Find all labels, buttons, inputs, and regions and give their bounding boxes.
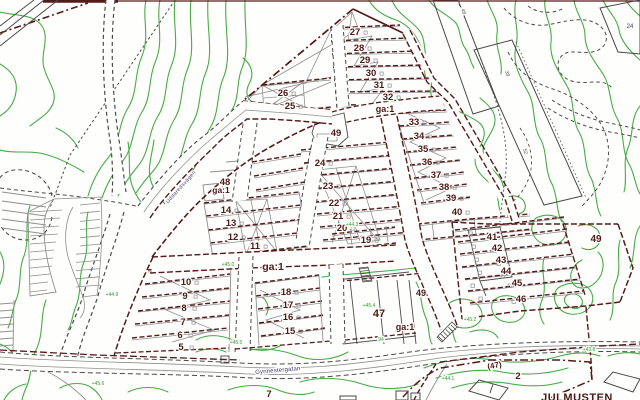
svg-text:24: 24 [315, 158, 326, 169]
svg-text:45: 45 [512, 278, 523, 289]
svg-text:5: 5 [178, 342, 184, 353]
svg-text:30: 30 [366, 68, 377, 79]
svg-text:42: 42 [492, 243, 503, 254]
svg-text:29: 29 [360, 55, 371, 66]
svg-text:44: 44 [501, 266, 512, 277]
svg-text:+45.5: +45.5 [230, 340, 243, 346]
svg-text:36: 36 [422, 157, 433, 168]
svg-text:6: 6 [177, 330, 182, 341]
svg-text:10: 10 [181, 277, 192, 288]
svg-text:7: 7 [180, 317, 185, 328]
svg-text:39: 39 [446, 193, 457, 204]
svg-text:7: 7 [266, 389, 271, 400]
svg-text:+45.0: +45.0 [222, 262, 235, 268]
svg-text:33: 33 [409, 117, 420, 128]
svg-text:49: 49 [331, 128, 342, 139]
svg-text:+45.6: +45.6 [92, 381, 105, 387]
svg-text:8: 8 [181, 303, 186, 314]
svg-text:23: 23 [323, 181, 334, 192]
svg-text:35: 35 [418, 144, 429, 155]
svg-text:ga:1: ga:1 [262, 261, 284, 273]
svg-text:16: 16 [283, 312, 294, 323]
svg-text:47: 47 [373, 308, 385, 320]
svg-text:40: 40 [452, 207, 463, 218]
svg-text:19: 19 [361, 235, 372, 246]
svg-text:+44.9: +44.9 [106, 292, 119, 298]
svg-text:11: 11 [250, 241, 261, 252]
svg-text:22: 22 [329, 198, 340, 209]
svg-text:9: 9 [182, 291, 187, 302]
svg-text:+45.4: +45.4 [363, 303, 376, 309]
svg-text:12: 12 [228, 232, 239, 243]
svg-text:94: 94 [378, 337, 384, 343]
svg-text:+44.3: +44.3 [346, 222, 359, 228]
svg-text:18: 18 [281, 287, 292, 298]
svg-text:32: 32 [383, 92, 394, 103]
svg-text:+44.1: +44.1 [442, 376, 455, 382]
svg-text:49: 49 [590, 234, 602, 245]
svg-text:27: 27 [350, 27, 361, 38]
svg-text:37: 37 [431, 170, 442, 181]
svg-text:2: 2 [515, 371, 520, 382]
svg-text:+45.2: +45.2 [464, 317, 477, 323]
svg-text:31: 31 [374, 80, 385, 91]
svg-text:JULMUSTEN: JULMUSTEN [541, 392, 613, 400]
svg-text:34: 34 [414, 131, 425, 142]
svg-text:ga:1: ga:1 [212, 185, 230, 195]
svg-text:21: 21 [333, 211, 344, 222]
svg-text:ga:1: ga:1 [396, 322, 415, 332]
svg-text:26: 26 [278, 88, 289, 99]
svg-text:46: 46 [516, 294, 527, 305]
svg-text:25: 25 [285, 101, 296, 112]
svg-text:24: 24 [627, 24, 634, 30]
svg-text:15: 15 [285, 326, 296, 337]
svg-text:14: 14 [221, 205, 232, 216]
svg-text:ga:1: ga:1 [376, 104, 395, 114]
svg-text:41: 41 [487, 232, 498, 243]
svg-text:+43.8: +43.8 [583, 347, 596, 353]
svg-text:13: 13 [226, 218, 237, 229]
svg-text:43: 43 [496, 255, 507, 266]
svg-text:49: 49 [416, 288, 426, 298]
svg-text:38: 38 [439, 182, 450, 193]
svg-text:28: 28 [354, 43, 365, 54]
svg-text:17: 17 [283, 300, 294, 311]
